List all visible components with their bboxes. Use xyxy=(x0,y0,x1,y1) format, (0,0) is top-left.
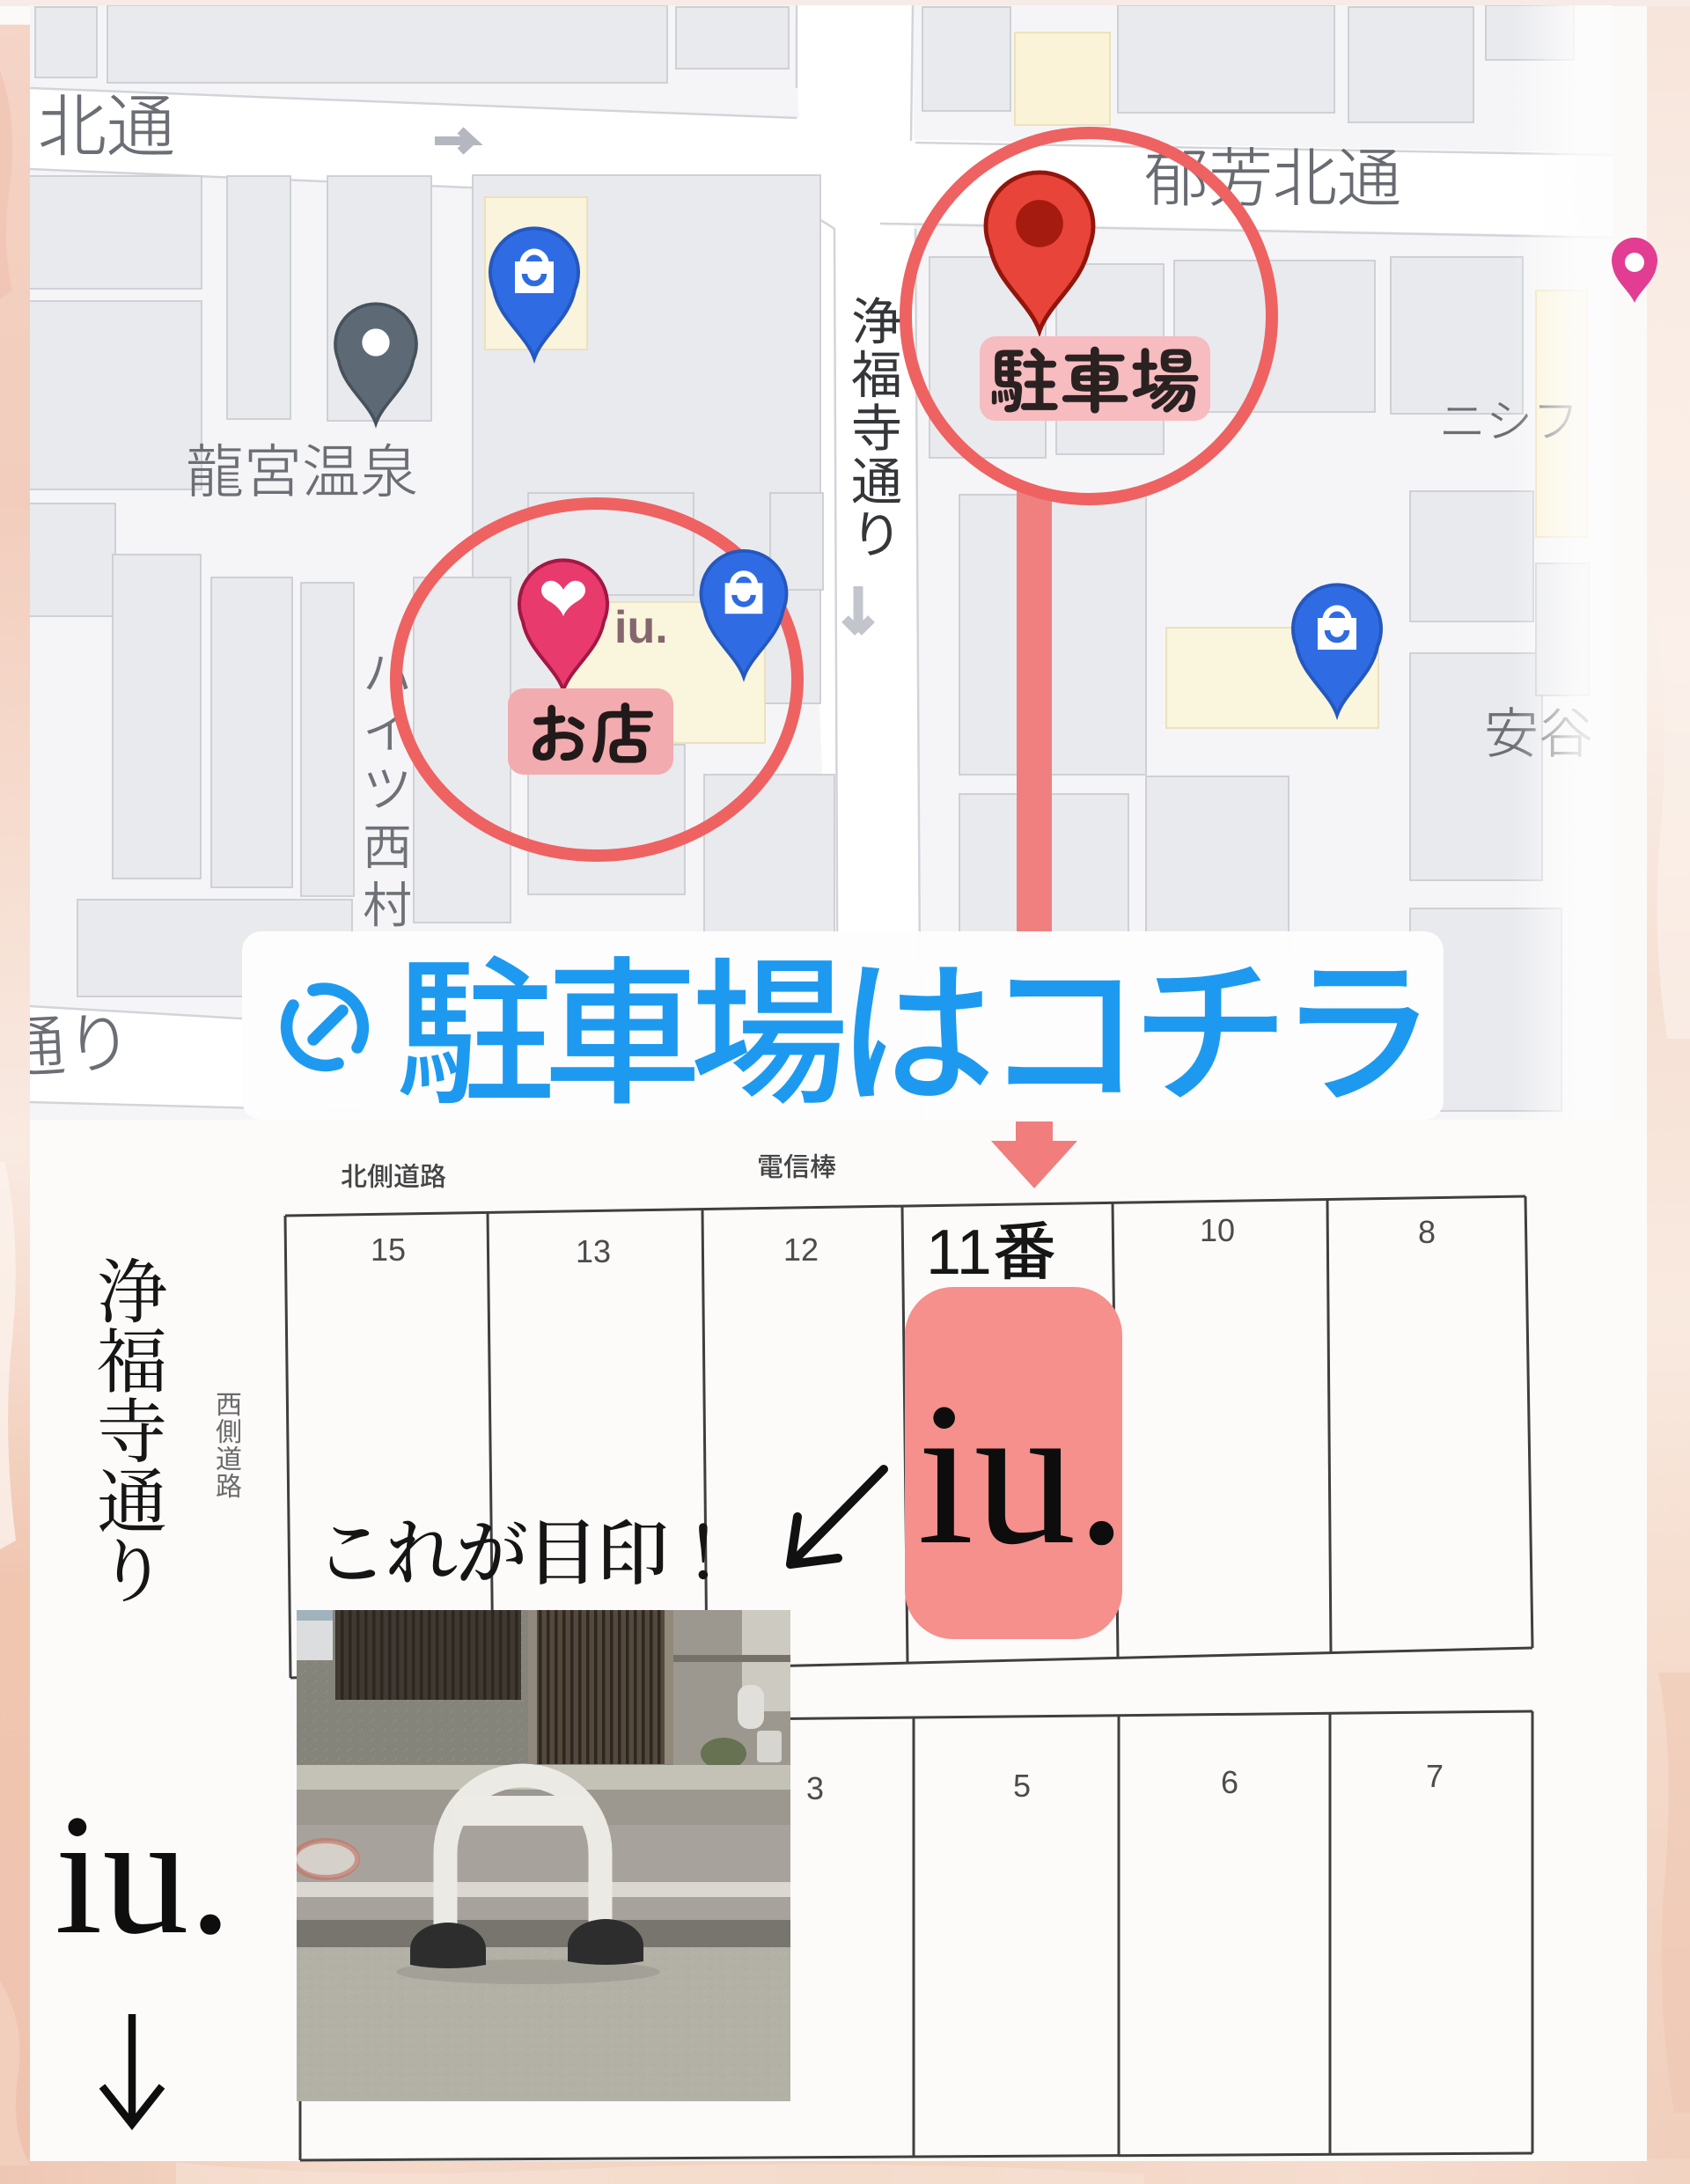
svg-text:12: 12 xyxy=(783,1232,819,1268)
svg-text:iu.: iu. xyxy=(55,1779,231,1970)
svg-text:3: 3 xyxy=(806,1770,824,1806)
svg-text:15: 15 xyxy=(371,1232,406,1268)
svg-text:8: 8 xyxy=(1418,1214,1436,1250)
svg-text:iu.: iu. xyxy=(917,1361,1127,1587)
svg-text:13: 13 xyxy=(576,1233,611,1269)
svg-text:7: 7 xyxy=(1426,1758,1444,1794)
svg-text:iu.: iu. xyxy=(614,602,668,653)
svg-text:6: 6 xyxy=(1221,1764,1238,1800)
svg-text:5: 5 xyxy=(1013,1768,1031,1804)
svg-text:11: 11 xyxy=(926,1217,992,1288)
svg-text:10: 10 xyxy=(1200,1212,1235,1248)
